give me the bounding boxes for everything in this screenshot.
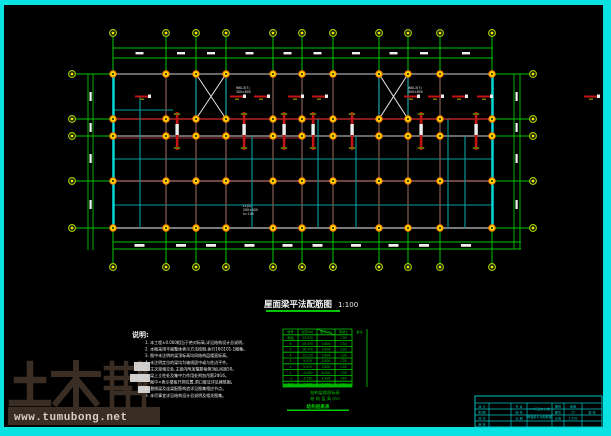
dimension-text-mark — [516, 92, 518, 101]
title-block-text: ××综合办公楼 — [529, 406, 550, 411]
table-cell: 3.600 — [322, 353, 331, 357]
title-block-text: 第 张 — [588, 410, 595, 415]
column-marker-hole — [112, 73, 114, 75]
column-marker-hole — [378, 135, 380, 137]
column-marker-hole — [301, 135, 303, 137]
column-marker-hole — [112, 118, 114, 120]
rebar-tick — [457, 99, 461, 101]
note-line: 7. 图中×表示楼板开洞位置,洞口做法详见建筑图。 — [145, 379, 235, 385]
rebar-dash — [404, 96, 417, 98]
column-marker-hole — [378, 227, 380, 229]
rebar-tick — [140, 99, 144, 101]
note-line: 2. 本图采用平面整体表示方法绘制,执行16G101-1图集。 — [145, 346, 247, 352]
dimension-text-mark — [283, 244, 293, 247]
dimension-text-mark — [420, 52, 428, 54]
table-cell: C35 — [340, 365, 346, 369]
rebar-tick — [174, 113, 180, 115]
title-block-text: 审 核 — [478, 422, 485, 427]
rebar-tick — [174, 147, 180, 149]
column-marker-hole — [378, 73, 380, 75]
column-marker-hole — [491, 180, 493, 182]
dimension-text-mark — [389, 244, 399, 247]
axis-bubble-dot — [225, 266, 228, 269]
dimension-text-mark — [419, 244, 429, 247]
beam-label: h=100 — [243, 212, 254, 216]
rebar-tick — [409, 99, 413, 101]
note-line: 3. 图中未注明的梁顶标高均同结构层楼面标高。 — [145, 352, 230, 358]
plan-title: 屋面梁平法配筋图 — [264, 299, 332, 310]
table-cell: 16.770 — [302, 348, 313, 352]
table-cell: 1 — [290, 371, 292, 375]
rebar-dash — [452, 96, 465, 98]
axis-bubble-dot — [301, 266, 304, 269]
column-marker-hole — [332, 135, 334, 137]
table-cell: C40 — [340, 377, 346, 381]
rebar-dash — [312, 96, 325, 98]
table-cell: 5.970 — [303, 365, 312, 369]
rebar-tag — [325, 95, 328, 99]
rebar-tag — [441, 95, 444, 99]
table-bottom-bar — [283, 384, 352, 387]
axis-bubble-dot — [272, 266, 275, 269]
rebar-tick — [473, 147, 479, 149]
note-line: 8. 悬挑梁及连梁配筋构造详见图集相应节点。 — [145, 385, 226, 391]
column-marker-hole — [301, 73, 303, 75]
table-cell: -1 — [289, 377, 292, 381]
rebar-tag — [267, 95, 270, 99]
rebar-tag — [474, 124, 477, 135]
column-marker-hole — [407, 227, 409, 229]
table-cell: 备注 — [356, 329, 362, 334]
dimension-text-mark — [284, 52, 292, 54]
column-marker-hole — [301, 118, 303, 120]
column-marker-hole — [332, 180, 334, 182]
axis-bubble-dot — [112, 32, 115, 35]
column-marker-hole — [225, 135, 227, 137]
dimension-text-mark — [516, 154, 518, 163]
table-cell: 层号 — [287, 329, 293, 334]
column-marker-hole — [332, 227, 334, 229]
column-marker-hole — [439, 73, 441, 75]
column-marker-hole — [165, 118, 167, 120]
table-cell: 6 — [290, 342, 292, 346]
column-marker-hole — [272, 73, 274, 75]
title-block-text: 比例 — [555, 416, 561, 421]
rebar-tick — [317, 99, 321, 101]
column-marker-hole — [225, 73, 227, 75]
table-cell: -0.030 — [303, 371, 313, 375]
title-block-text: 图别 — [555, 404, 561, 409]
column-marker-hole — [165, 73, 167, 75]
column-marker-hole — [491, 118, 493, 120]
column-marker-hole — [272, 180, 274, 182]
axis-bubble-dot — [301, 32, 304, 35]
column-marker-hole — [272, 118, 274, 120]
axis-bubble-dot — [378, 266, 381, 269]
dimension-text-mark — [313, 244, 323, 247]
title-block-text: 设 计 — [478, 404, 485, 409]
title-block-text: 日 期 — [515, 416, 522, 421]
table-cell: 3.600 — [322, 365, 331, 369]
watermark-url: www.tumubong.net — [14, 412, 128, 424]
note-line: 9. 未尽事宜详见结构设计总说明及相关图集。 — [145, 392, 226, 398]
rebar-tick — [418, 113, 424, 115]
column-marker-hole — [225, 180, 227, 182]
rebar-tick — [281, 147, 287, 149]
column-marker-hole — [332, 73, 334, 75]
plan-title-scale: 1:100 — [338, 301, 358, 309]
table-footer-line1: 结构层楼面标高 — [310, 389, 339, 396]
rebar-tick — [473, 113, 479, 115]
rebar-dash — [584, 96, 597, 98]
dimension-text-mark — [207, 52, 215, 54]
axis-bubble-dot — [491, 32, 494, 35]
table-cell: 层高(m) — [320, 329, 332, 334]
dimension-text-mark — [90, 154, 92, 163]
column-marker-hole — [195, 118, 197, 120]
table-cell: 3.600 — [322, 348, 331, 352]
table-cell: 23.970 — [302, 336, 313, 340]
axis-bubble-dot — [439, 32, 442, 35]
dimension-text-mark — [516, 200, 518, 209]
table-cell: -4.530 — [303, 377, 313, 381]
notes-heading: 说明: — [132, 330, 149, 339]
axis-bubble-dot — [532, 227, 535, 230]
axis-bubble-dot — [378, 32, 381, 35]
rebar-tag — [242, 124, 245, 135]
column-marker-hole — [439, 180, 441, 182]
rebar-tick — [349, 147, 355, 149]
dimension-text-mark — [516, 123, 518, 132]
rebar-tick — [418, 147, 424, 149]
axis-bubble-dot — [532, 135, 535, 138]
column-marker-hole — [301, 227, 303, 229]
beam-label: 300×600 — [236, 90, 251, 94]
column-marker-hole — [112, 135, 114, 137]
table-cell: C30 — [340, 342, 346, 346]
rebar-tick — [310, 113, 316, 115]
axis-bubble-dot — [332, 32, 335, 35]
dimension-text-mark — [390, 52, 398, 54]
rebar-tick — [293, 99, 297, 101]
dimension-text-mark — [135, 244, 145, 247]
axis-bubble-dot — [71, 73, 74, 76]
table-cell: 屋面 — [287, 335, 293, 340]
beam-label: 300×600 — [408, 90, 423, 94]
rebar-tag — [282, 124, 285, 135]
table-cell: 13.170 — [302, 353, 313, 357]
column-marker-hole — [332, 118, 334, 120]
column-marker-hole — [378, 118, 380, 120]
column-marker-hole — [112, 180, 114, 182]
dimension-text-mark — [246, 52, 254, 54]
axis-bubble-dot — [225, 32, 228, 35]
table-cell: 混凝土 — [339, 329, 348, 334]
dimension-text-mark — [177, 52, 185, 54]
table-cell: C30 — [340, 348, 346, 352]
rebar-dash — [428, 96, 441, 98]
column-marker-hole — [195, 135, 197, 137]
axis-bubble-dot — [71, 227, 74, 230]
rebar-tick — [310, 147, 316, 149]
axis-bubble-dot — [532, 73, 535, 76]
rebar-tag — [350, 124, 353, 135]
axis-bubble-dot — [195, 266, 198, 269]
axis-bubble-dot — [532, 180, 535, 183]
column-marker-hole — [272, 135, 274, 137]
table-cell: 20.370 — [302, 342, 313, 346]
axis-bubble-dot — [71, 135, 74, 138]
rebar-tag — [148, 95, 151, 99]
axis-bubble-dot — [332, 266, 335, 269]
axis-bubble-dot — [71, 118, 74, 121]
rebar-tag — [311, 124, 314, 135]
rebar-dash — [254, 96, 267, 98]
column-marker-hole — [225, 227, 227, 229]
axis-bubble-dot — [195, 32, 198, 35]
table-cell: 6.000 — [322, 371, 331, 375]
axis-bubble-dot — [407, 266, 410, 269]
table-cell: C30 — [340, 353, 346, 357]
axis-bubble-dot — [491, 266, 494, 269]
rebar-tick — [235, 99, 239, 101]
dimension-text-mark — [351, 244, 361, 247]
table-cell: 4.500 — [322, 377, 331, 381]
note-line: 5. 主次梁相交处,主梁内附加箍筋每侧3组,间距50。 — [145, 365, 236, 371]
column-marker-hole — [112, 227, 114, 229]
axis-bubble-dot — [407, 32, 410, 35]
axis-bubble-dot — [439, 266, 442, 269]
dimension-text-mark — [90, 200, 92, 209]
column-marker-hole — [491, 135, 493, 137]
column-marker-hole — [491, 73, 493, 75]
note-line: 1. 本工程±0.000相当于绝对标高,详见结构设计总说明。 — [145, 339, 246, 345]
rebar-tag — [417, 95, 420, 99]
rebar-tag — [465, 95, 468, 99]
dimension-text-mark — [176, 244, 186, 247]
rebar-tick — [589, 99, 593, 101]
note-line: 6. 梁上立柱处及集中力作用处附加吊筋2Φ16。 — [145, 372, 229, 378]
column-marker-hole — [378, 180, 380, 182]
rebar-tag — [301, 95, 304, 99]
dimension-text-mark — [352, 52, 360, 54]
dimension-text-mark — [90, 123, 92, 132]
column-marker-hole — [407, 180, 409, 182]
table-footer-line2: 结 构 层 高 (m) — [310, 395, 340, 402]
title-block-text: 专 业 — [515, 404, 522, 409]
column-marker-hole — [407, 73, 409, 75]
axis-bubble-dot — [71, 180, 74, 183]
table-caption-underline — [287, 410, 349, 412]
title-block-text: 15 — [571, 411, 575, 415]
table-cell: 3.600 — [322, 342, 331, 346]
table-cell: 标高(m) — [302, 329, 314, 334]
column-marker-hole — [491, 227, 493, 229]
rebar-tag — [243, 95, 246, 99]
column-marker-hole — [195, 227, 197, 229]
dimension-text-mark — [245, 244, 255, 247]
table-cell: C30 — [340, 336, 346, 340]
dimension-text-mark — [136, 52, 144, 54]
column-marker-hole — [165, 180, 167, 182]
rebar-tick — [433, 99, 437, 101]
rebar-dash — [135, 96, 148, 98]
column-marker-hole — [272, 227, 274, 229]
rebar-tag — [419, 124, 422, 135]
rebar-tick — [349, 113, 355, 115]
table-cell: 4 — [290, 353, 292, 357]
rebar-tick — [281, 113, 287, 115]
dimension-text-mark — [206, 244, 216, 247]
column-marker-hole — [195, 180, 197, 182]
table-cell: C35 — [340, 359, 346, 363]
column-marker-hole — [225, 118, 227, 120]
dimension-text-mark — [462, 52, 470, 54]
column-marker-hole — [195, 73, 197, 75]
title-block-text: 屋面梁平法配筋图 — [527, 414, 552, 419]
table-cell: 3 — [290, 359, 292, 363]
title-block-text: 结施 — [570, 404, 576, 409]
title-block-text: 1:100 — [569, 417, 578, 421]
title-block-text: 结 构 — [515, 410, 522, 415]
column-marker-hole — [407, 118, 409, 120]
column-marker-hole — [439, 135, 441, 137]
dimension-text-mark — [90, 92, 92, 101]
rebar-dash — [477, 96, 490, 98]
rebar-dash — [230, 96, 243, 98]
table-cell: 5 — [290, 348, 292, 352]
table-cell: 9.570 — [303, 359, 312, 363]
axis-bubble-dot — [112, 266, 115, 269]
table-caption: 结构层高表 — [307, 403, 330, 410]
column-marker-hole — [165, 135, 167, 137]
rebar-tick — [482, 99, 486, 101]
column-marker-hole — [439, 118, 441, 120]
title-block-text: 图号 — [555, 410, 561, 415]
axis-bubble-dot — [272, 32, 275, 35]
table-cell: C35 — [340, 371, 346, 375]
cad-application-window: WKL3(7)300×600WKL3(7)300×600L1(2)200×400… — [0, 0, 611, 436]
table-cell: 3.600 — [322, 359, 331, 363]
table-cell: 2 — [290, 365, 292, 369]
column-marker-hole — [439, 227, 441, 229]
dimension-text-mark — [461, 244, 471, 247]
rebar-tag — [175, 124, 178, 135]
rebar-tag — [597, 95, 600, 99]
plan-title-underline — [266, 310, 340, 312]
axis-bubble-dot — [165, 32, 168, 35]
dimension-text-mark — [314, 52, 322, 54]
column-marker-hole — [301, 180, 303, 182]
column-marker-hole — [407, 135, 409, 137]
column-marker-hole — [165, 227, 167, 229]
axis-bubble-dot — [165, 266, 168, 269]
note-line: 4. 未注明定位的梁均为轴线居中或与柱边平齐。 — [145, 359, 230, 365]
rebar-tick — [259, 99, 263, 101]
rebar-dash — [288, 96, 301, 98]
axis-bubble-dot — [532, 118, 535, 121]
cad-canvas[interactable]: WKL3(7)300×600WKL3(7)300×600L1(2)200×400… — [0, 0, 611, 436]
rebar-tag — [490, 95, 493, 99]
rebar-tick — [241, 147, 247, 149]
title-block-text: 校 对 — [478, 416, 485, 421]
title-block-text: 制 图 — [478, 410, 485, 415]
rebar-tick — [241, 113, 247, 115]
